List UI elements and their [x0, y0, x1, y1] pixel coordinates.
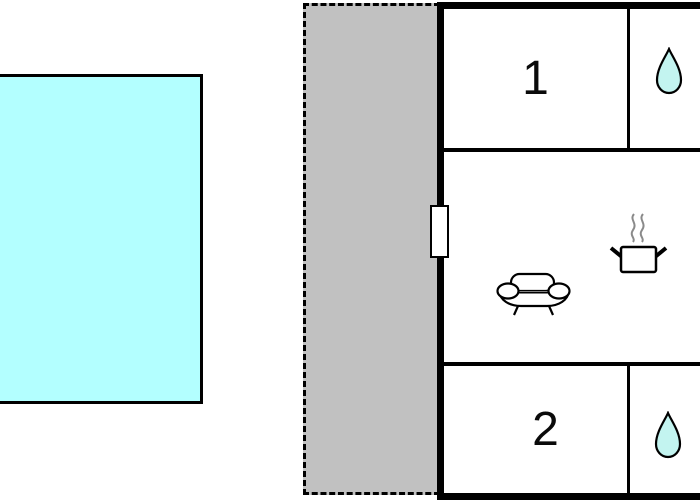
water-drop-icon — [654, 47, 684, 95]
sofa-icon — [496, 270, 572, 317]
cooking-pot-icon — [609, 211, 669, 274]
terrace — [303, 3, 440, 495]
floor-plan: 1 2 — [0, 0, 700, 500]
wall-interior-h1 — [444, 148, 700, 152]
room-1-label: 1 — [444, 9, 627, 148]
room-2-label: 2 — [454, 366, 637, 493]
wall-interior-v1 — [627, 9, 630, 148]
water-drop-icon — [653, 411, 683, 459]
swimming-pool — [0, 74, 203, 404]
entrance-door — [430, 205, 449, 258]
